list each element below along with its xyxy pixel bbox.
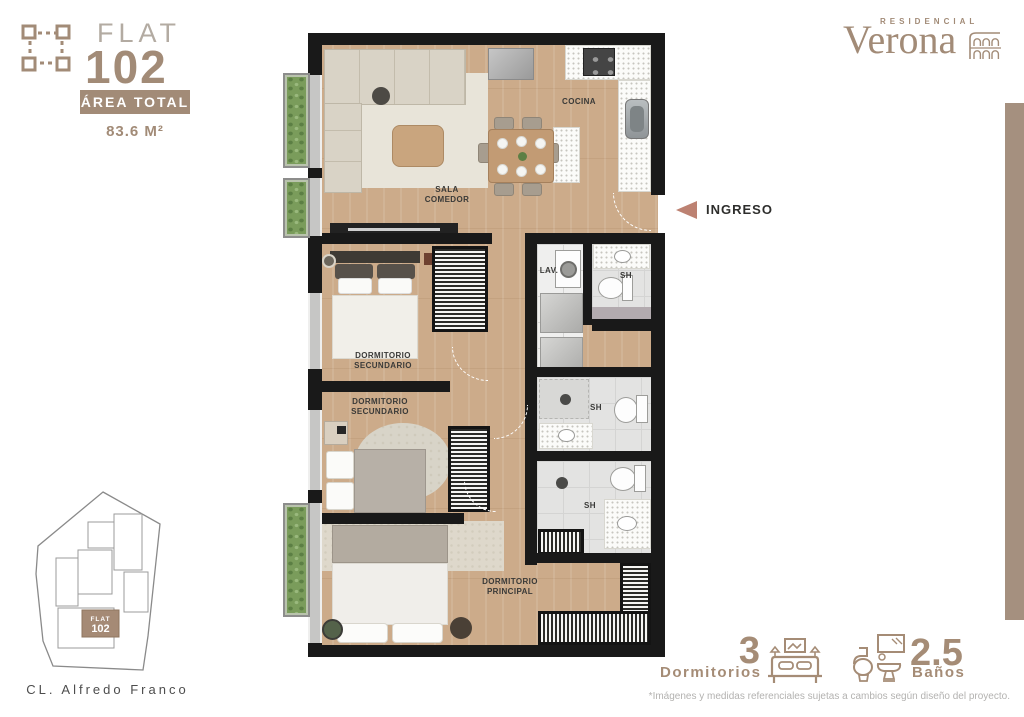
sofa-top bbox=[324, 49, 466, 105]
site-plan: FLAT 102 bbox=[28, 484, 183, 676]
wall-corridor bbox=[525, 233, 537, 565]
sink-bowl bbox=[558, 429, 575, 442]
duvet bbox=[332, 563, 448, 625]
sink-basin bbox=[630, 106, 644, 132]
pillow-dark bbox=[335, 264, 373, 279]
dining-chair bbox=[494, 183, 514, 196]
pillow bbox=[392, 623, 443, 643]
table-centerpiece bbox=[518, 152, 527, 161]
wall-bath2-bath3 bbox=[525, 451, 665, 461]
plate bbox=[535, 138, 546, 149]
wall-bed1-bed2 bbox=[322, 381, 450, 392]
balcony-glass-living bbox=[308, 75, 322, 168]
pillow bbox=[378, 278, 412, 294]
toilet-tank bbox=[634, 465, 646, 492]
wall-bath3-bottom bbox=[525, 553, 665, 563]
toilet-tank bbox=[636, 395, 648, 423]
balcony-glass-living2 bbox=[308, 178, 322, 236]
wall-living-bed1 bbox=[322, 233, 492, 244]
street-label: CL. Alfredo Franco bbox=[10, 682, 205, 697]
bedrooms-label: Dormitorios bbox=[660, 664, 760, 681]
dining-table bbox=[488, 129, 554, 183]
planter-box bbox=[283, 73, 310, 168]
bathroom1-shower-threshold bbox=[592, 307, 651, 319]
stove bbox=[583, 48, 615, 76]
blanket bbox=[332, 525, 448, 563]
plate bbox=[516, 136, 527, 147]
label-dormitorio-principal: DORMITORIO PRINCIPAL bbox=[468, 577, 552, 597]
ingreso-arrow-icon bbox=[676, 201, 697, 219]
shower-area bbox=[539, 379, 589, 419]
site-plan-unit-number: 102 bbox=[91, 623, 109, 635]
disclaimer-text: *Imágenes y medidas referenciales sujeta… bbox=[640, 691, 1010, 702]
closet-secondary-1 bbox=[432, 246, 488, 332]
headboard bbox=[330, 251, 420, 263]
colosseum-arch-icon bbox=[968, 26, 1002, 60]
side-table-round bbox=[450, 617, 472, 639]
balcony-glass-principal bbox=[308, 503, 322, 643]
label-dormitorio-secundario-2: DORMITORIO SECUNDARIO bbox=[335, 397, 425, 417]
bathrooms-label: Baños bbox=[912, 664, 965, 681]
pillow bbox=[326, 482, 354, 510]
pillow-dark bbox=[377, 264, 415, 279]
label-dormitorio-secundario-1: DORMITORIO SECUNDARIO bbox=[338, 351, 428, 371]
window-bed2 bbox=[308, 410, 322, 490]
wall-bath1-bottom bbox=[592, 319, 665, 331]
label-sh2: SH bbox=[582, 403, 610, 413]
flyer-page: FLAT 102 ÁREA TOTAL 83.6 M² RESIDENCIAL … bbox=[0, 0, 1024, 717]
wall-right-lower bbox=[651, 233, 665, 657]
pillow bbox=[337, 623, 388, 643]
nightstand-deco bbox=[337, 426, 346, 434]
duvet-gray bbox=[354, 449, 426, 513]
laundry-shelf bbox=[540, 293, 583, 333]
plate bbox=[497, 138, 508, 149]
bathroom2-vanity bbox=[539, 423, 593, 449]
sofa-left bbox=[324, 103, 362, 193]
floor-plan: COCINA SALA COMEDOR LAV. SH SH SH DORMIT… bbox=[280, 25, 672, 665]
fridge bbox=[488, 48, 534, 80]
plant-pot bbox=[322, 619, 343, 640]
wall-right-upper bbox=[651, 33, 665, 195]
wall-bottom bbox=[308, 645, 665, 657]
closet-principal-bottom bbox=[538, 611, 651, 645]
bed-principal bbox=[332, 525, 448, 645]
shower-drain bbox=[560, 394, 571, 405]
planter-box bbox=[283, 178, 310, 238]
kitchen-sink bbox=[625, 99, 649, 139]
wall-bed2-principal bbox=[322, 513, 464, 524]
label-sala-comedor: SALA COMEDOR bbox=[417, 185, 477, 205]
unit-number: 102 bbox=[85, 44, 168, 90]
duvet bbox=[332, 295, 418, 359]
area-total-value: 83.6 M² bbox=[80, 123, 190, 140]
sink-bowl bbox=[614, 250, 631, 263]
ingreso-label: INGRESO bbox=[706, 202, 773, 217]
dining-chair bbox=[522, 183, 542, 196]
wall-top bbox=[308, 33, 665, 45]
wall-bath2-top bbox=[525, 367, 665, 377]
shower-drain bbox=[556, 477, 568, 489]
hall-closet bbox=[538, 529, 584, 555]
area-total-badge: ÁREA TOTAL bbox=[80, 90, 190, 114]
toilet-bowl bbox=[614, 397, 638, 423]
site-plan-unit-type: FLAT bbox=[90, 616, 110, 623]
bathroom1-vanity bbox=[593, 244, 650, 269]
accent-side-bar bbox=[1005, 103, 1024, 620]
label-cocina: COCINA bbox=[556, 97, 602, 107]
toilet-bowl bbox=[610, 467, 636, 491]
bathroom-icon bbox=[852, 634, 906, 686]
wall-laundry-bath1 bbox=[583, 240, 592, 325]
bathroom3-vanity bbox=[604, 499, 651, 549]
logo-verona: Verona bbox=[843, 22, 956, 58]
planter-box bbox=[283, 503, 310, 617]
bed-secondary-1 bbox=[330, 251, 420, 361]
side-table bbox=[372, 87, 390, 105]
plate bbox=[497, 164, 508, 175]
plate bbox=[535, 164, 546, 175]
bed-secondary-2 bbox=[326, 449, 426, 513]
pillow bbox=[338, 278, 372, 294]
pillow bbox=[326, 451, 354, 479]
bedside-lamp bbox=[322, 254, 336, 268]
area-plot-icon bbox=[20, 24, 72, 74]
sink-bowl bbox=[617, 516, 637, 531]
label-sh1: SH bbox=[612, 271, 640, 281]
label-sh3: SH bbox=[576, 501, 604, 511]
window-bed1 bbox=[308, 293, 322, 369]
wall-kitchen-bath bbox=[535, 233, 651, 244]
plate bbox=[516, 166, 527, 177]
bed-icon bbox=[766, 638, 824, 686]
tv-screen bbox=[348, 228, 440, 231]
coffee-table bbox=[392, 125, 444, 167]
label-lav: LAV. bbox=[536, 266, 562, 276]
washer-drum bbox=[560, 261, 577, 278]
nightstand bbox=[324, 421, 348, 445]
